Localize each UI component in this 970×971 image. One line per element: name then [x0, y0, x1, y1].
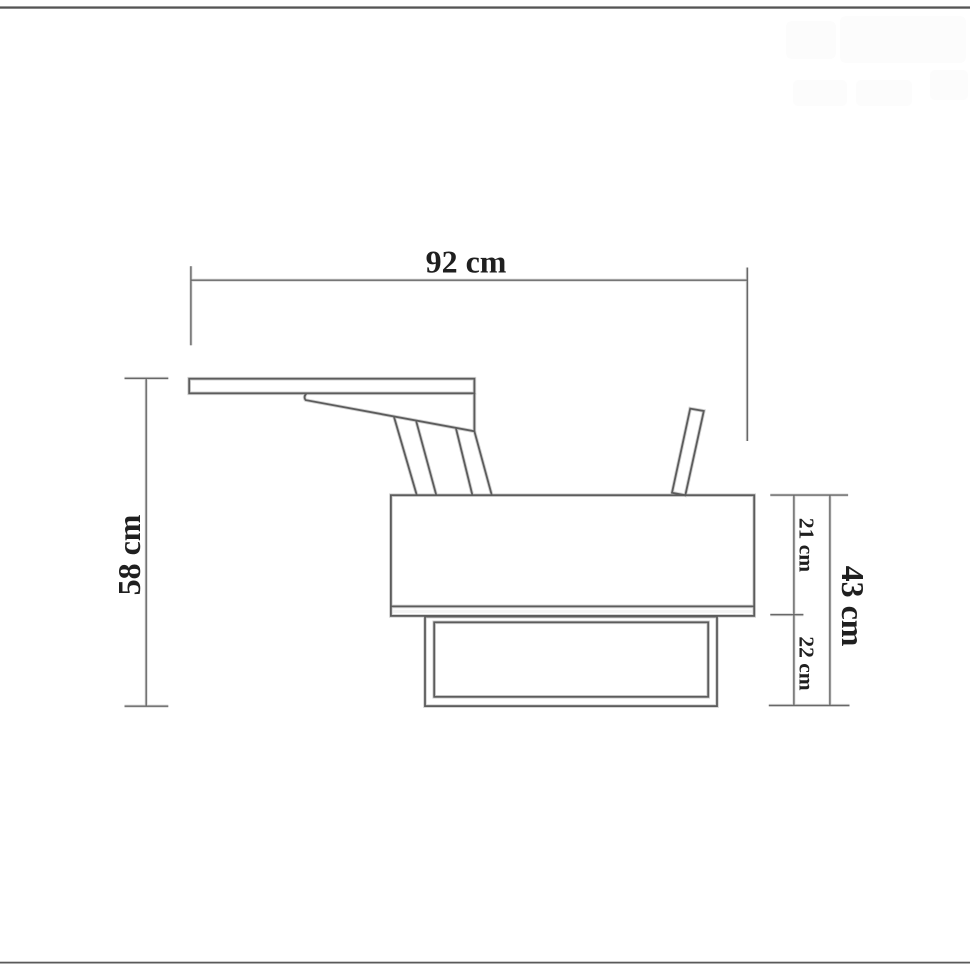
svg-text:58 cm: 58 cm: [111, 514, 147, 595]
svg-text:21 cm: 21 cm: [794, 518, 818, 572]
svg-text:22 cm: 22 cm: [794, 636, 818, 690]
svg-text:92 cm: 92 cm: [426, 243, 507, 279]
svg-text:43 cm: 43 cm: [835, 566, 871, 647]
